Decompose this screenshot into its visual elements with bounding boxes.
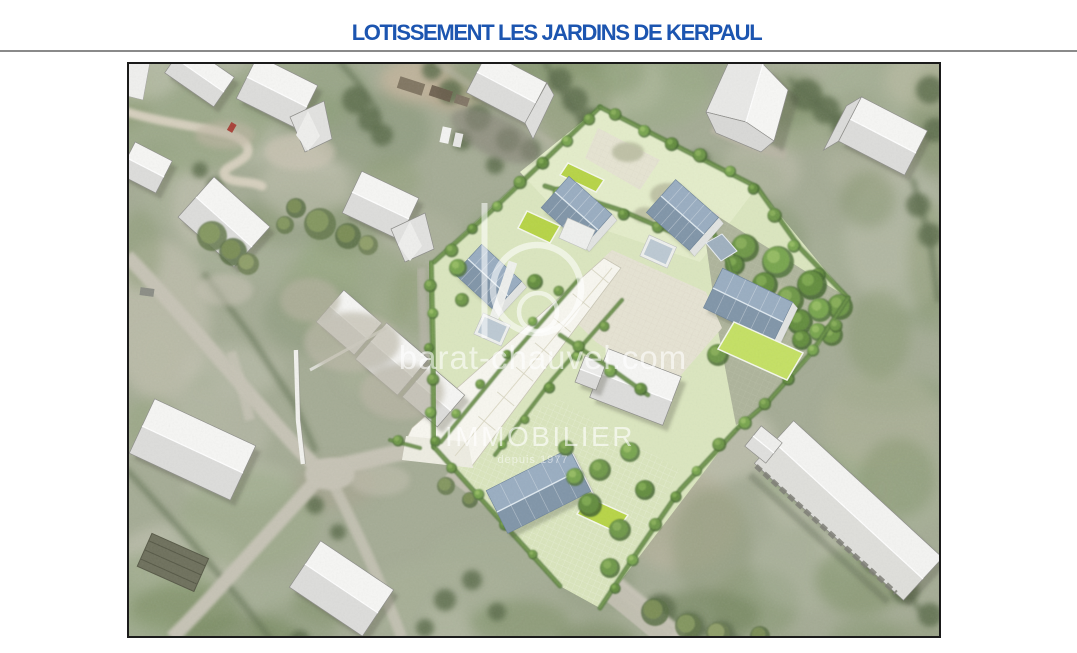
svg-text:barat-chauvel.com: barat-chauvel.com: [399, 339, 687, 376]
svg-text:depuis 1977: depuis 1977: [498, 454, 569, 466]
svg-text:IMMOBILIER: IMMOBILIER: [445, 421, 635, 452]
